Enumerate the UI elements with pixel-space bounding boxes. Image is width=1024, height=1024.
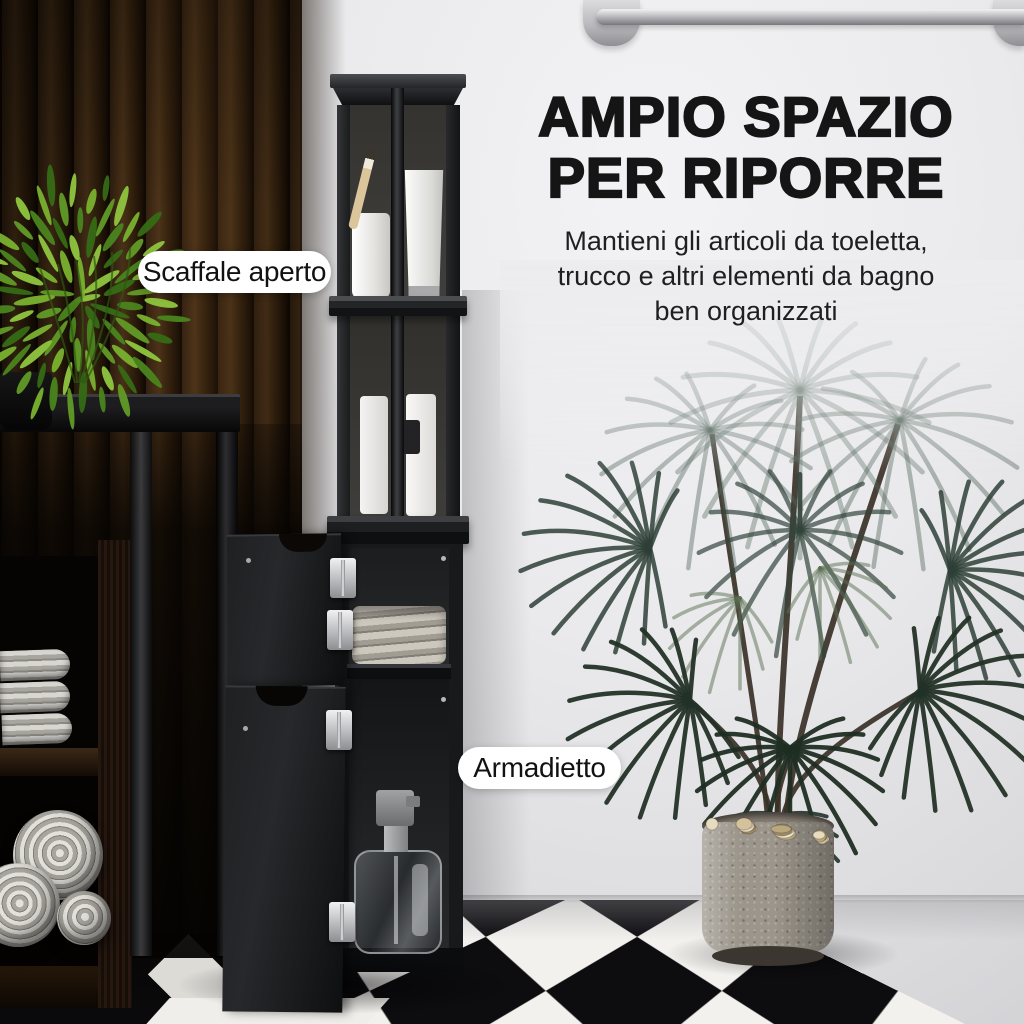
cabinet-divider-shelf xyxy=(347,664,451,679)
door-screw xyxy=(243,726,248,731)
door-hinge xyxy=(330,558,356,598)
tower-crown-top xyxy=(330,74,466,88)
plant-stand-leg xyxy=(130,432,152,956)
cabinet-top-board xyxy=(327,516,469,544)
door-hinge xyxy=(329,902,355,942)
toiletry-bottle xyxy=(360,396,388,514)
subheadline-line-2: trucco e altri elementi da bagno xyxy=(468,259,1024,294)
folded-towel xyxy=(0,649,71,681)
tower-side-panel-left xyxy=(337,105,350,533)
door-screw xyxy=(246,558,251,563)
green-bush-plant xyxy=(0,148,220,438)
folded-towel xyxy=(0,681,71,713)
towel-shelf-side-panel xyxy=(98,540,132,1008)
page-title: AMPIO SPAZIO PER RIPORRE xyxy=(468,86,1024,208)
toiletry-dispenser-bottle xyxy=(406,394,436,516)
headline-line-2: PER RIPORRE xyxy=(468,147,1024,208)
door-hinge xyxy=(326,710,352,750)
toothpaste-tube xyxy=(404,170,444,298)
door-hinge xyxy=(327,610,353,650)
soap-dispenser-label xyxy=(412,864,428,936)
tower-open-shelf-board xyxy=(329,296,467,316)
shelf-pin xyxy=(441,697,446,702)
callout-open-shelf-label: Scaffale aperto xyxy=(143,256,326,288)
cabinet-door-upper[interactable] xyxy=(227,533,343,687)
callout-cabinet-label: Armadietto xyxy=(473,752,605,784)
rolled-towel xyxy=(57,891,111,945)
cabinet-folded-towels xyxy=(352,606,446,664)
product-scene: AMPIO SPAZIO PER RIPORRE Mantieni gli ar… xyxy=(0,0,1024,1024)
subheadline: Mantieni gli articoli da toeletta, trucc… xyxy=(468,224,1024,329)
shelf-pin xyxy=(441,556,446,561)
soap-dispenser-neck xyxy=(384,824,408,852)
soap-dispenser-spout xyxy=(406,796,420,807)
folded-towel xyxy=(1,713,72,745)
subheadline-line-3: ben organizzati xyxy=(468,294,1024,329)
headline-line-1: AMPIO SPAZIO xyxy=(468,86,1024,147)
plant-pot-base xyxy=(712,946,824,966)
soap-dispenser-tube xyxy=(394,856,398,944)
callout-open-shelf: Scaffale aperto xyxy=(138,251,331,293)
tower-side-panel-right xyxy=(446,105,460,533)
callout-cabinet: Armadietto xyxy=(458,747,621,789)
pot-pebbles xyxy=(702,810,834,852)
towel-shelf-board xyxy=(0,748,112,776)
towel-bar-rail xyxy=(596,9,1024,25)
subheadline-line-1: Mantieni gli articoli da toeletta, xyxy=(468,224,1024,259)
soap-dispenser-body xyxy=(354,850,442,954)
